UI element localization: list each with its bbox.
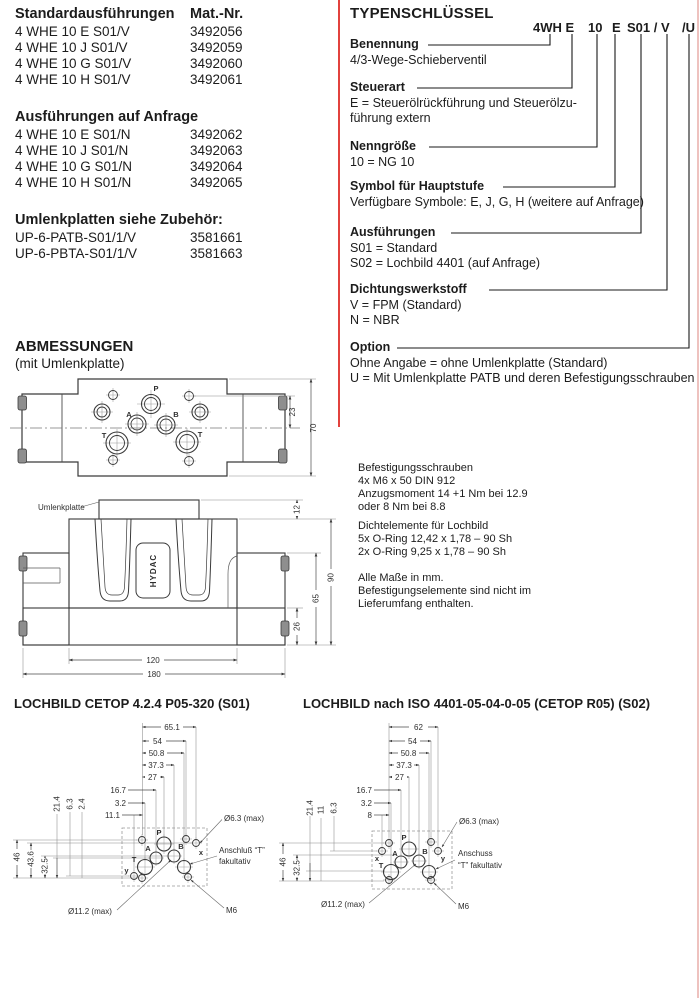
note-line: Lieferumfang enthalten. [358, 598, 531, 611]
model-cell: 4 WHE 10 G S01/N [15, 159, 190, 175]
dim-180: 180 [147, 670, 161, 679]
model-cell: 4 WHE 10 E S01/V [15, 24, 190, 40]
umlenkplatte-label: Umlenkplatte [38, 503, 85, 512]
dim-32-5: 32.5 [293, 860, 302, 876]
dim-2-4: 2.4 [78, 798, 87, 810]
model-cell: UP-6-PATB-S01/1/V [15, 230, 190, 246]
dim-8: 8 [368, 811, 373, 820]
table-row: 4 WHE 10 J S01/V3492059 [15, 40, 325, 56]
table-row: UP-6-PBTA-S01/1/V3581663 [15, 246, 325, 262]
model-cell: 4 WHE 10 H S01/V [15, 72, 190, 88]
port-label-p: P [401, 833, 406, 842]
model-cell: 4 WHE 10 J S01/N [15, 143, 190, 159]
port-label-t: T [379, 861, 384, 870]
note-line: oder 8 Nm bei 8.8 [358, 501, 528, 514]
note-line: 4x M6 x 50 DIN 912 [358, 475, 528, 488]
top-view-drawing: P A B T T 23 70 [8, 376, 328, 480]
dim-27: 27 [148, 773, 157, 782]
dim-90: 90 [327, 573, 336, 582]
leader-lines [117, 820, 224, 911]
port-label-y: y [441, 854, 446, 863]
dim-12: 12 [293, 505, 302, 514]
lochbild-s02-title: LOCHBILD nach ISO 4401-05-04-0-05 (CETOP… [303, 696, 650, 711]
matnr-cell: 3492061 [190, 72, 243, 87]
dim-23: 23 [288, 407, 297, 416]
ts-line: führung extern [350, 111, 698, 127]
dim-43-6: 43.6 [27, 851, 36, 867]
label-m6: M6 [458, 902, 470, 911]
ts-section-dichtung: Dichtungswerkstoff V = FPM (Standard) N … [350, 282, 698, 329]
dim-62: 62 [414, 723, 423, 732]
ts-label: Dichtungswerkstoff [350, 282, 698, 298]
dim-120: 120 [146, 656, 160, 665]
extension-lines [23, 500, 336, 678]
dim-46: 46 [279, 857, 288, 866]
ts-line: Verfügbare Symbole: E, J, G, H (weitere … [350, 195, 698, 211]
ts-label: Ausführungen [350, 225, 698, 241]
ts-line: E = Steuerölrückführung und Steuerölzu- [350, 96, 698, 112]
dim-46: 46 [13, 852, 22, 861]
table-row: 4 WHE 10 E S01/N3492062 [15, 127, 325, 143]
port-label-p: P [153, 384, 158, 393]
end-cap-tabs [18, 396, 287, 463]
model-cell: 4 WHE 10 E S01/N [15, 127, 190, 143]
dim-6-3: 6.3 [66, 798, 75, 810]
matnr-cell: 3492056 [190, 24, 243, 39]
abmessungen-title: ABMESSUNGEN [15, 338, 133, 355]
dim-26: 26 [293, 622, 302, 631]
ts-section-nenngroesse: Nenngröße 10 = NG 10 [350, 139, 698, 170]
matnr-cell: 3492064 [190, 159, 243, 174]
ts-line: 10 = NG 10 [350, 155, 698, 171]
dim-65: 65 [312, 594, 321, 603]
notes-befestigung: Befestigungsschrauben 4x M6 x 50 DIN 912… [358, 462, 528, 514]
table-row: 4 WHE 10 G S01/V3492060 [15, 56, 325, 72]
label-dia6-3: Ø6.3 (max) [459, 817, 499, 826]
label-t-fakultativ: “T” fakultativ [458, 861, 502, 870]
port-label-y: y [124, 866, 129, 875]
ts-section-ausfuehrungen: Ausführungen S01 = Standard S02 = Lochbi… [350, 225, 698, 272]
model-cell: 4 WHE 10 H S01/N [15, 175, 190, 191]
ts-label: Symbol für Hauptstufe [350, 179, 698, 195]
ports [379, 839, 442, 884]
dim-21-4: 21.4 [53, 796, 62, 812]
label-fakultativ: fakultativ [219, 857, 251, 866]
ts-line: 4/3-Wege-Schieberventil [350, 53, 698, 69]
umlenk-title: Umlenkplatten siehe Zubehör: [15, 212, 223, 228]
port-label-b: B [178, 842, 184, 851]
table-row: 4 WHE 10 J S01/N3492063 [15, 143, 325, 159]
note-line: 5x O-Ring 12,42 x 1,78 – 90 Sh [358, 533, 512, 546]
dim-3-2: 3.2 [115, 799, 127, 808]
notes-masse: Alle Maße in mm. Befestigungselemente si… [358, 572, 531, 611]
label-dia11-2: Ø11.2 (max) [321, 900, 365, 909]
dim-27: 27 [395, 773, 404, 782]
dim-16-7: 16.7 [110, 786, 126, 795]
dimension-lines [17, 727, 196, 878]
label-m6: M6 [226, 906, 238, 915]
label-dia6-3: Ø6.3 (max) [224, 814, 264, 823]
dim-11: 11 [317, 805, 326, 814]
model-cell: 4 WHE 10 J S01/V [15, 40, 190, 56]
table-header: Umlenkplatten siehe Zubehör: [15, 212, 325, 228]
dim-54: 54 [408, 737, 417, 746]
ts-line: U = Mit Umlenkplatte PATB und deren Befe… [350, 371, 698, 387]
note-line: Alle Maße in mm. [358, 572, 531, 585]
standard-title: Standardausführungen [15, 6, 190, 22]
datasheet-page: StandardausführungenMat.-Nr. 4 WHE 10 E … [0, 0, 700, 998]
dim-50-8: 50.8 [149, 749, 165, 758]
plate-outline [22, 379, 285, 476]
dim-6-3: 6.3 [330, 802, 339, 814]
matnr-cell: 3492060 [190, 56, 243, 71]
matnr-cell: 3492062 [190, 127, 243, 142]
ts-line: S01 = Standard [350, 241, 698, 257]
matnr-header: Mat.-Nr. [190, 6, 243, 22]
matnr-cell: 3581661 [190, 230, 243, 245]
lochbild-s02-drawing: 62 54 50.8 37.3 27 16.7 3.2 8 46 32.5 21… [278, 718, 513, 928]
note-line: Befestigungsschrauben [358, 462, 528, 475]
port-label-t-right: T [198, 430, 203, 439]
standard-versions-table: StandardausführungenMat.-Nr. 4 WHE 10 E … [15, 6, 325, 88]
port-label-p: P [156, 828, 161, 837]
dim-21-4: 21.4 [306, 800, 315, 816]
port-label-a: A [126, 410, 132, 419]
ts-line: N = NBR [350, 313, 698, 329]
on-request-table: Ausführungen auf Anfrage 4 WHE 10 E S01/… [15, 109, 325, 191]
notes-dichtelemente: Dichtelemente für Lochbild 5x O-Ring 12,… [358, 520, 512, 559]
matnr-cell: 3581663 [190, 246, 243, 261]
label-anschuss: Anschuss [458, 849, 493, 858]
note-line: Anzugsmoment 14 +1 Nm bei 12.9 [358, 488, 528, 501]
lochbild-s01-title: LOCHBILD CETOP 4.2.4 P05-320 (S01) [14, 696, 250, 711]
label-dia11-2: Ø11.2 (max) [68, 907, 112, 916]
ts-label: Steuerart [350, 80, 698, 96]
model-cell: UP-6-PBTA-S01/1/V [15, 246, 190, 262]
dim-3-2: 3.2 [361, 799, 373, 808]
ts-label: Benennung [350, 37, 698, 53]
table-row: 4 WHE 10 G S01/N3492064 [15, 159, 325, 175]
table-row: 4 WHE 10 H S01/N3492065 [15, 175, 325, 191]
matnr-cell: 3492059 [190, 40, 243, 55]
dim-50-8: 50.8 [401, 749, 417, 758]
dim-70: 70 [309, 423, 318, 432]
note-line: Dichtelemente für Lochbild [358, 520, 512, 533]
dim-54: 54 [153, 737, 162, 746]
ts-section-benennung: Benennung 4/3-Wege-Schieberventil [350, 37, 698, 68]
anfrage-title: Ausführungen auf Anfrage [15, 109, 198, 125]
abmessungen-subtitle: (mit Umlenkplatte) [15, 356, 125, 371]
umlenkplatten-table: Umlenkplatten siehe Zubehör: UP-6-PATB-S… [15, 212, 325, 262]
ts-section-symbol: Symbol für Hauptstufe Verfügbare Symbole… [350, 179, 698, 210]
dim-32-5: 32.5 [41, 858, 50, 874]
note-line: 2x O-Ring 9,25 x 1,78 – 90 Sh [358, 546, 512, 559]
front-view-drawing: HYDAC Umlenkplatte 12 26 65 90 120 180 [8, 494, 340, 680]
ts-label: Nenngröße [350, 139, 698, 155]
port-label-a: A [145, 844, 151, 853]
port-label-b: B [422, 847, 428, 856]
port-label-t: T [132, 855, 137, 864]
table-row: 4 WHE 10 H S01/V3492061 [15, 72, 325, 88]
table-row: 4 WHE 10 E S01/V3492056 [15, 24, 325, 40]
label-anschluss-t: Anschluß “T” [219, 846, 265, 855]
ts-line: V = FPM (Standard) [350, 298, 698, 314]
ts-section-option: Option Ohne Angabe = ohne Umlenkplatte (… [350, 340, 698, 387]
port-label-t-left: T [102, 431, 107, 440]
hydac-logo: HYDAC [149, 554, 158, 587]
matnr-cell: 3492063 [190, 143, 243, 158]
ts-label: Option [350, 340, 698, 356]
ts-line: Ohne Angabe = ohne Umlenkplatte (Standar… [350, 356, 698, 372]
dim-16-7: 16.7 [356, 786, 372, 795]
lochbild-s01-drawing: 65.1 54 50.8 37.3 27 16.7 3.2 11.1 46 43… [8, 718, 243, 928]
model-cell: 4 WHE 10 G S01/V [15, 56, 190, 72]
dim-65-1: 65.1 [164, 723, 180, 732]
table-header: Ausführungen auf Anfrage [15, 109, 325, 125]
table-row: UP-6-PATB-S01/1/V3581661 [15, 230, 325, 246]
table-header: StandardausführungenMat.-Nr. [15, 6, 325, 22]
dim-11-1: 11.1 [105, 811, 121, 820]
ports [131, 836, 200, 882]
port-label-b: B [173, 410, 179, 419]
ts-section-steuerart: Steuerart E = Steuerölrückführung und St… [350, 80, 698, 127]
port-label-a: A [392, 849, 398, 858]
note-line: Befestigungselemente sind nicht im [358, 585, 531, 598]
ts-line: S02 = Lochbild 4401 (auf Anfrage) [350, 256, 698, 272]
matnr-cell: 3492065 [190, 175, 243, 190]
port-label-x: x [199, 848, 204, 857]
dim-37-3: 37.3 [148, 761, 164, 770]
dim-37-3: 37.3 [396, 761, 412, 770]
